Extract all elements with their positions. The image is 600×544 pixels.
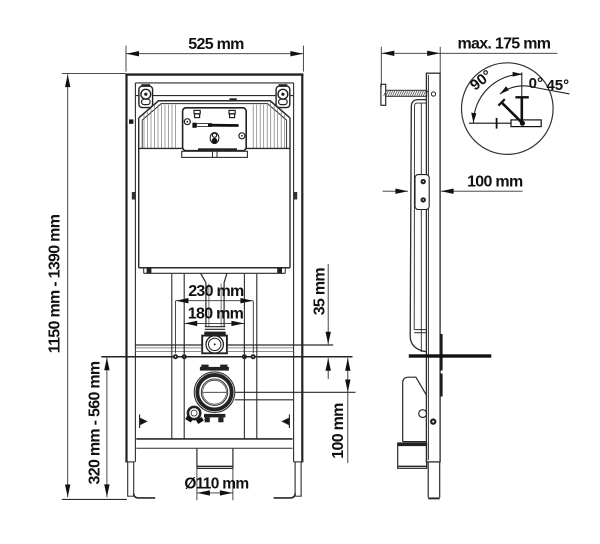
svg-text:45°: 45° — [546, 77, 569, 94]
svg-text:100 mm: 100 mm — [467, 174, 523, 191]
svg-text:525 mm: 525 mm — [188, 36, 244, 53]
svg-text:max. 175 mm: max. 175 mm — [457, 36, 550, 53]
svg-text:Ø110 mm: Ø110 mm — [184, 476, 248, 493]
svg-text:1150 mm - 1390 mm: 1150 mm - 1390 mm — [47, 214, 64, 353]
svg-text:100 mm: 100 mm — [330, 403, 347, 459]
svg-text:180 mm: 180 mm — [188, 306, 244, 323]
svg-text:35 mm: 35 mm — [312, 268, 329, 316]
svg-text:0°: 0° — [529, 75, 543, 92]
svg-text:230 mm: 230 mm — [188, 283, 244, 300]
svg-text:320 mm - 560 mm: 320 mm - 560 mm — [87, 361, 104, 484]
